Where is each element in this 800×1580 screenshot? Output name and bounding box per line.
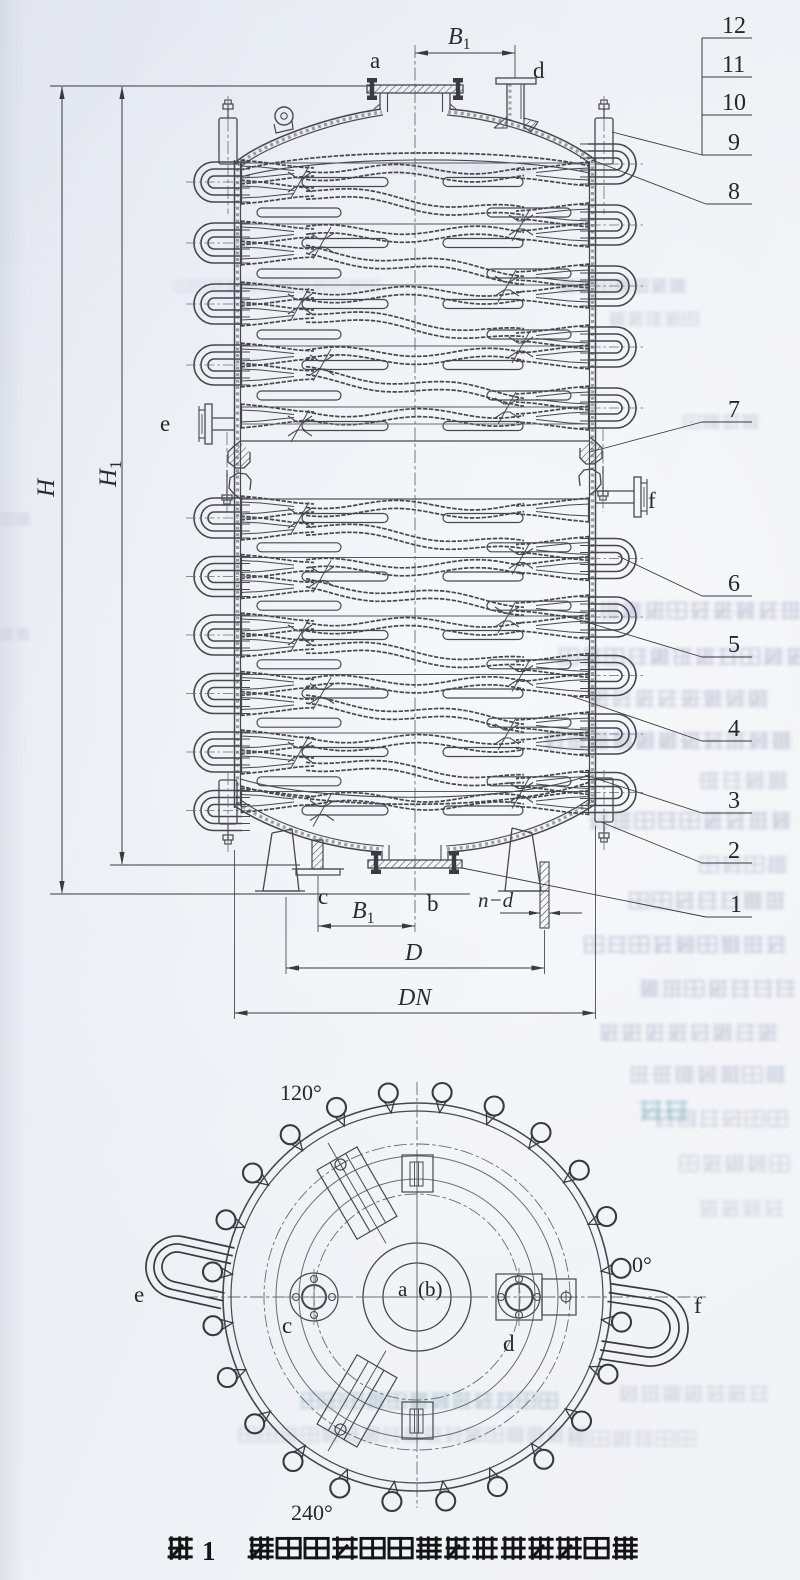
svg-text:H1: H1	[95, 460, 125, 488]
svg-text:2: 2	[728, 838, 740, 864]
svg-text:11: 11	[722, 52, 745, 78]
svg-text:c: c	[282, 1313, 292, 1338]
svg-text:0°: 0°	[632, 1252, 652, 1277]
svg-text:n−d: n−d	[478, 888, 514, 912]
svg-text:10: 10	[722, 90, 746, 116]
svg-text:b: b	[427, 891, 439, 916]
svg-text:120°: 120°	[280, 1080, 322, 1105]
svg-text:5: 5	[728, 632, 740, 658]
svg-text:B1: B1	[448, 24, 471, 53]
svg-text:d: d	[533, 58, 545, 83]
svg-text:a: a	[370, 48, 380, 73]
svg-text:240°: 240°	[291, 1500, 333, 1525]
svg-text:9: 9	[728, 130, 740, 156]
svg-text:e: e	[134, 1282, 144, 1307]
svg-text:12: 12	[722, 13, 746, 39]
svg-text:1: 1	[730, 892, 742, 918]
svg-text:4: 4	[728, 716, 740, 742]
svg-text:f: f	[648, 488, 656, 513]
svg-text:6: 6	[728, 571, 740, 597]
svg-text:d: d	[503, 1331, 515, 1356]
svg-text:c: c	[318, 884, 328, 909]
svg-text:e: e	[160, 411, 170, 436]
svg-text:H: H	[33, 477, 60, 498]
svg-text:B1: B1	[352, 898, 375, 927]
svg-text:f: f	[694, 1293, 702, 1318]
svg-text:7: 7	[728, 397, 740, 423]
svg-text:3: 3	[728, 788, 740, 814]
svg-text:a: a	[398, 1277, 408, 1301]
svg-text:DN: DN	[397, 985, 433, 1011]
svg-text:8: 8	[728, 179, 740, 205]
svg-text:(b): (b)	[418, 1277, 443, 1301]
svg-text:1: 1	[202, 1536, 216, 1566]
svg-text:D: D	[404, 940, 422, 966]
